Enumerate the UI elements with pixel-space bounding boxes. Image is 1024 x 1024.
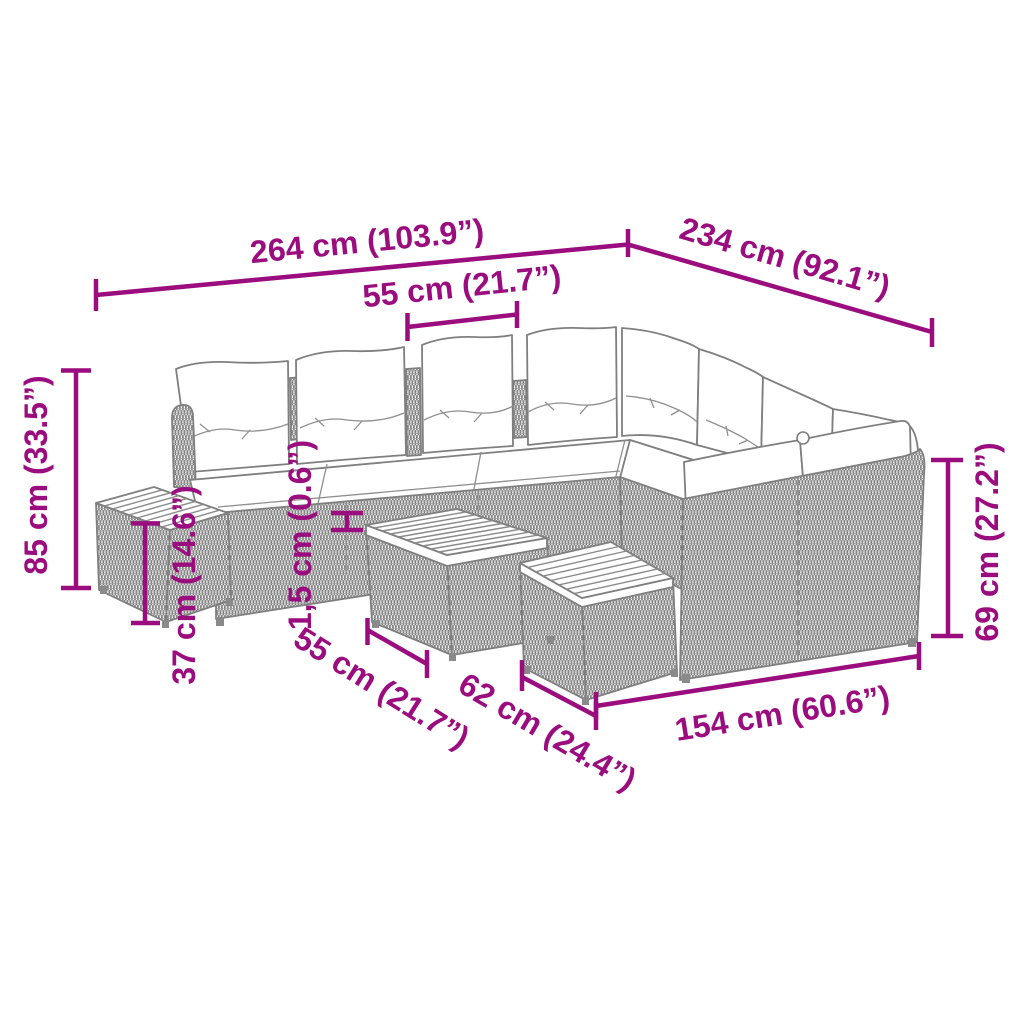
svg-text:1,5 cm (0.6”): 1,5 cm (0.6”) (282, 440, 318, 630)
svg-text:69 cm (27.2”): 69 cm (27.2”) (969, 442, 1005, 641)
svg-text:37 cm (14.6”): 37 cm (14.6”) (166, 485, 202, 684)
svg-text:85 cm (33.5”): 85 cm (33.5”) (18, 375, 54, 574)
